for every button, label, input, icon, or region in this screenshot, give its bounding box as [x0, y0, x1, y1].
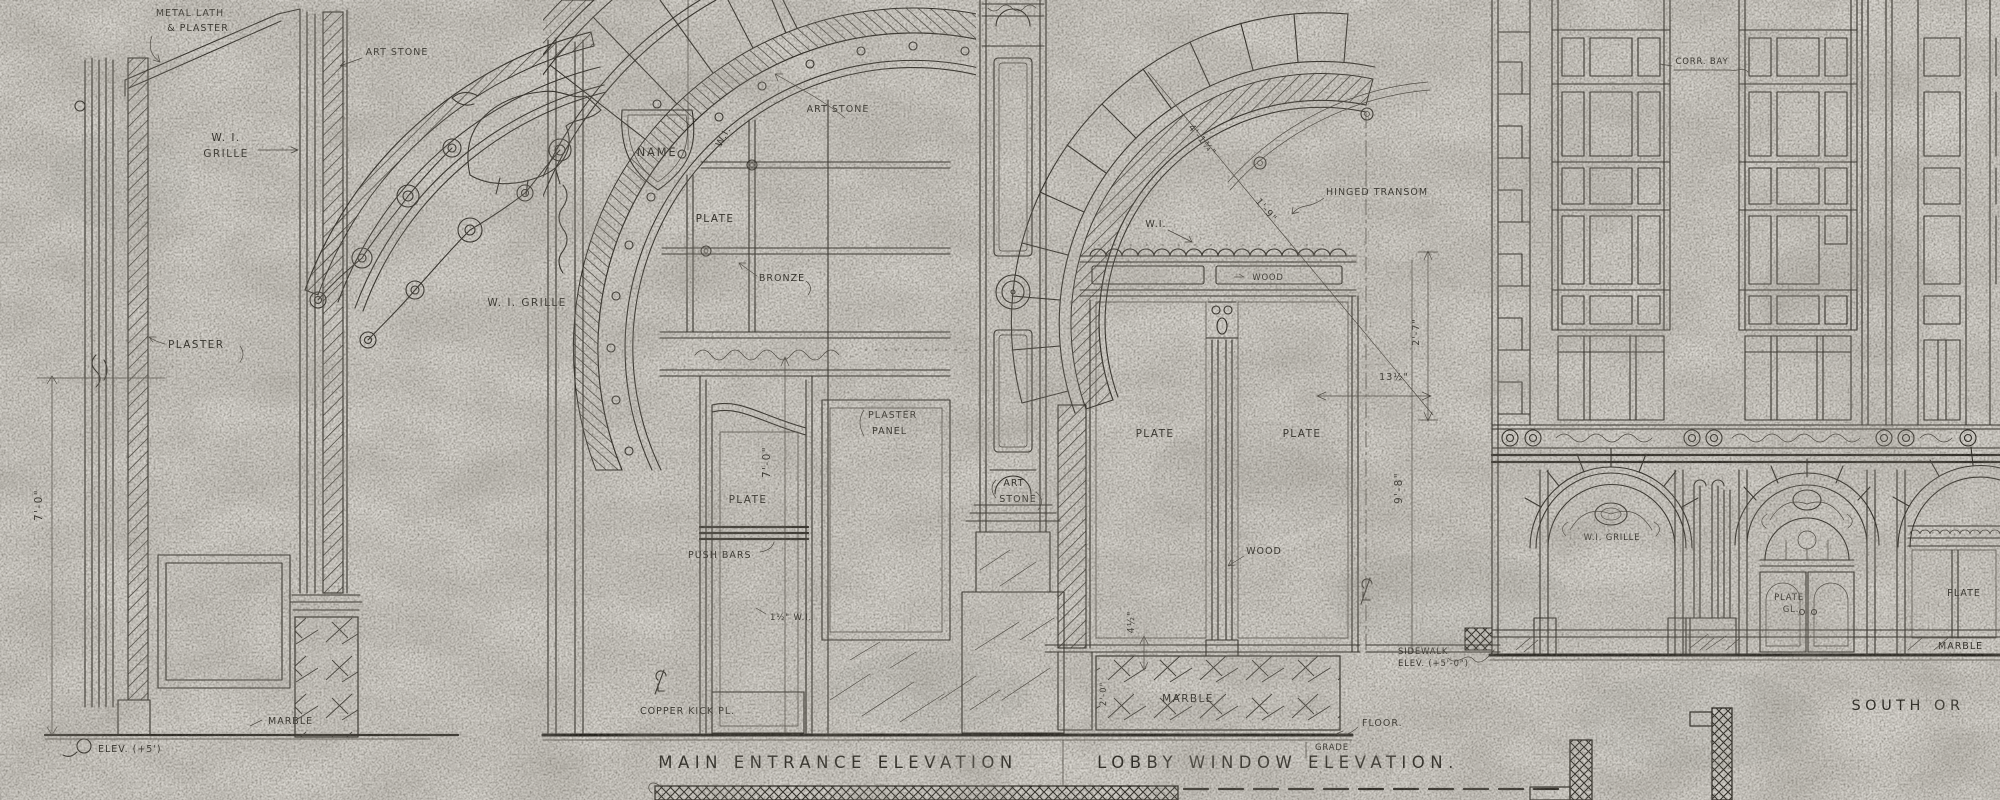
drawing-canvas: 7'-0" ELEV. (+5') METAL LATH & PLASTER A… — [0, 0, 2000, 800]
blueprint-sheet: 7'-0" ELEV. (+5') METAL LATH & PLASTER A… — [0, 0, 2000, 800]
paper-grain-texture — [0, 0, 2000, 800]
